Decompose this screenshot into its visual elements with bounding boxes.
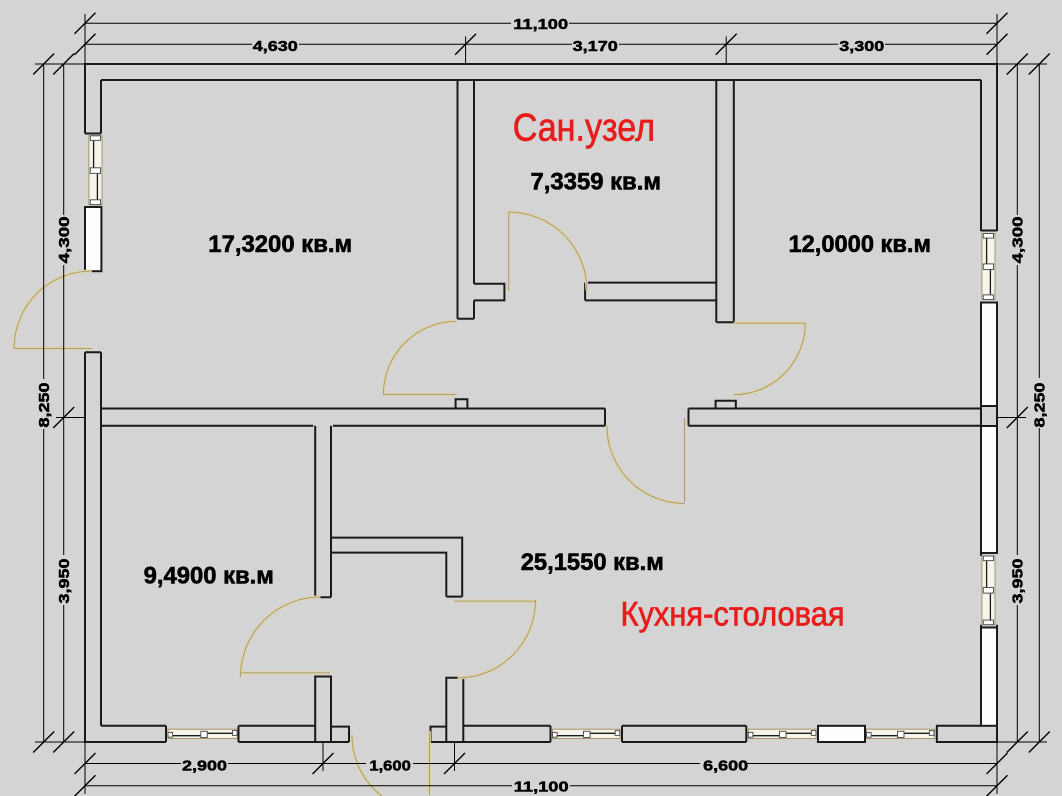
svg-text:3,950: 3,950 xyxy=(1010,559,1027,604)
svg-text:11,100: 11,100 xyxy=(514,778,569,795)
svg-text:6,600: 6,600 xyxy=(703,757,748,774)
svg-text:4,300: 4,300 xyxy=(56,216,73,263)
svg-text:8,250: 8,250 xyxy=(36,383,53,428)
svg-text:3,300: 3,300 xyxy=(839,38,884,55)
svg-text:1,600: 1,600 xyxy=(369,757,410,774)
svg-text:3,170: 3,170 xyxy=(573,38,618,55)
svg-text:25,1550 кв.м: 25,1550 кв.м xyxy=(521,549,664,576)
svg-text:7,3359 кв.м: 7,3359 кв.м xyxy=(531,168,662,195)
svg-text:4,630: 4,630 xyxy=(253,38,298,55)
svg-text:2,900: 2,900 xyxy=(182,757,227,774)
svg-text:4,300: 4,300 xyxy=(1010,216,1027,263)
svg-text:12,0000 кв.м: 12,0000 кв.м xyxy=(789,231,932,258)
svg-text:17,3200 кв.м: 17,3200 кв.м xyxy=(208,231,352,258)
svg-text:9,4900 кв.м: 9,4900 кв.м xyxy=(144,563,274,590)
svg-text:8,250: 8,250 xyxy=(1032,383,1049,428)
svg-text:11,100: 11,100 xyxy=(513,16,568,33)
svg-text:Сан.узел: Сан.узел xyxy=(513,106,655,149)
svg-text:3,950: 3,950 xyxy=(56,559,73,604)
svg-text:Кухня-столовая: Кухня-столовая xyxy=(621,596,845,634)
